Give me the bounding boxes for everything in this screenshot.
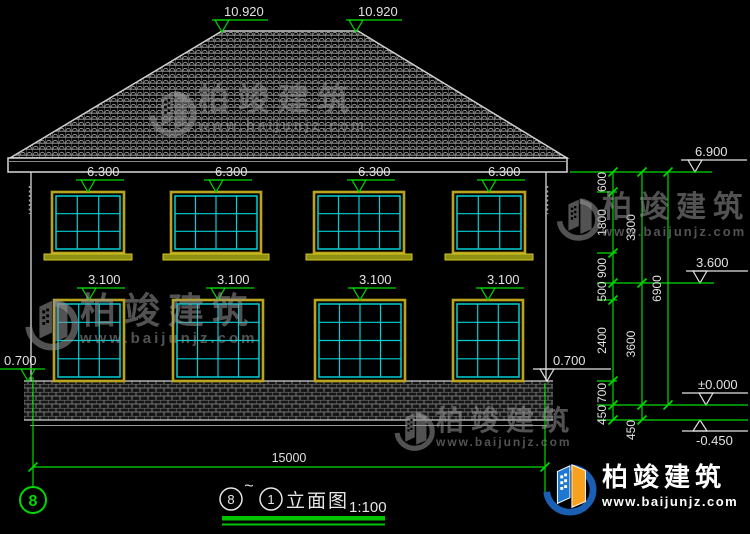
grid-bubble-label: 8 [29,493,38,510]
elevation-label: 6.300 [87,164,120,179]
elevation-label: 3.100 [359,272,392,287]
lower-window-3 [315,300,405,381]
elevation-marker: 6.900 [681,144,747,172]
title-underline-thin [222,524,385,526]
elevation-label: 0.700 [4,353,37,368]
elevation-label: 3.100 [487,272,520,287]
upper-window-4 [445,192,533,260]
elevation-label: ±0.000 [698,377,738,392]
dimension-label: 3300 [624,214,638,241]
lower-window-2 [173,300,263,381]
elevation-marker: 3.600 [686,255,748,283]
upper-window-3 [306,192,412,260]
elevation-marker: 3.100 [77,272,125,300]
brand-logo-url: www.baijunjz.com [602,494,738,509]
elevation-marker: 10.920 [346,4,402,32]
total-width-label: 15000 [272,451,307,465]
plinth-stone-texture [24,381,553,420]
grid-bubble-left: 8 [20,487,46,513]
title-name: 立面图 [286,490,349,512]
title-scale: 1:100 [349,499,387,516]
upper-window-2 [163,192,269,260]
dimension-label: 900 [595,258,609,278]
title-block: 8 ~ 1 立面图 1:100 [220,478,387,526]
upper-window-1 [44,192,132,260]
dimension-label: 3600 [624,330,638,357]
dimension-label: 1800 [595,209,609,236]
title-grid-start: 8 [227,492,234,507]
elevation-marker: 0.700 [533,353,611,381]
title-tilde: ~ [244,478,253,495]
dimension-label: 500 [595,281,609,301]
elevation-label: 6.300 [488,164,521,179]
title-underline-thick [222,516,385,521]
brand-logo: 柏竣建筑 www.baijunjz.com [540,457,738,519]
title-grid-end: 1 [267,492,274,507]
brand-logo-name: 柏竣建筑 [602,463,738,492]
lower-window-1 [54,300,124,381]
elevation-label: 0.700 [553,353,586,368]
dimension-label: 450 [624,420,638,440]
elevation-label: 3.600 [696,255,729,270]
dimension-label: 6900 [650,275,664,302]
elevation-label: 6.300 [215,164,248,179]
elevation-marker: ±0.000 [682,377,748,405]
lower-window-4 [453,300,523,381]
elevation-marker: 3.100 [348,272,396,300]
elevation-label: 10.920 [224,4,264,19]
brand-logo-icon [540,457,598,519]
elevation-drawing-canvas: 10.92010.9206.3006.3006.3006.3003.1003.1… [0,0,750,534]
elevation-label: -0.450 [696,433,733,448]
elevation-marker: 3.100 [476,272,524,300]
elevation-marker: 0.700 [0,353,45,381]
dimension-label: 600 [595,172,609,192]
cad-linework: 10.92010.9206.3006.3006.3006.3003.1003.1… [0,0,750,534]
elevation-label: 3.100 [88,272,121,287]
dimension-label: 450 [595,405,609,425]
elevation-label: 6.900 [695,144,728,159]
dimension-label: 700 [595,383,609,403]
elevation-marker: 10.920 [212,4,268,32]
elevation-label: 3.100 [217,272,250,287]
elevation-label: 6.300 [358,164,391,179]
elevation-label: 10.920 [358,4,398,19]
dimension-label: 2400 [595,327,609,354]
elevation-marker: -0.450 [682,420,748,448]
plinth [24,381,553,426]
elevation-marker: 3.100 [206,272,254,300]
